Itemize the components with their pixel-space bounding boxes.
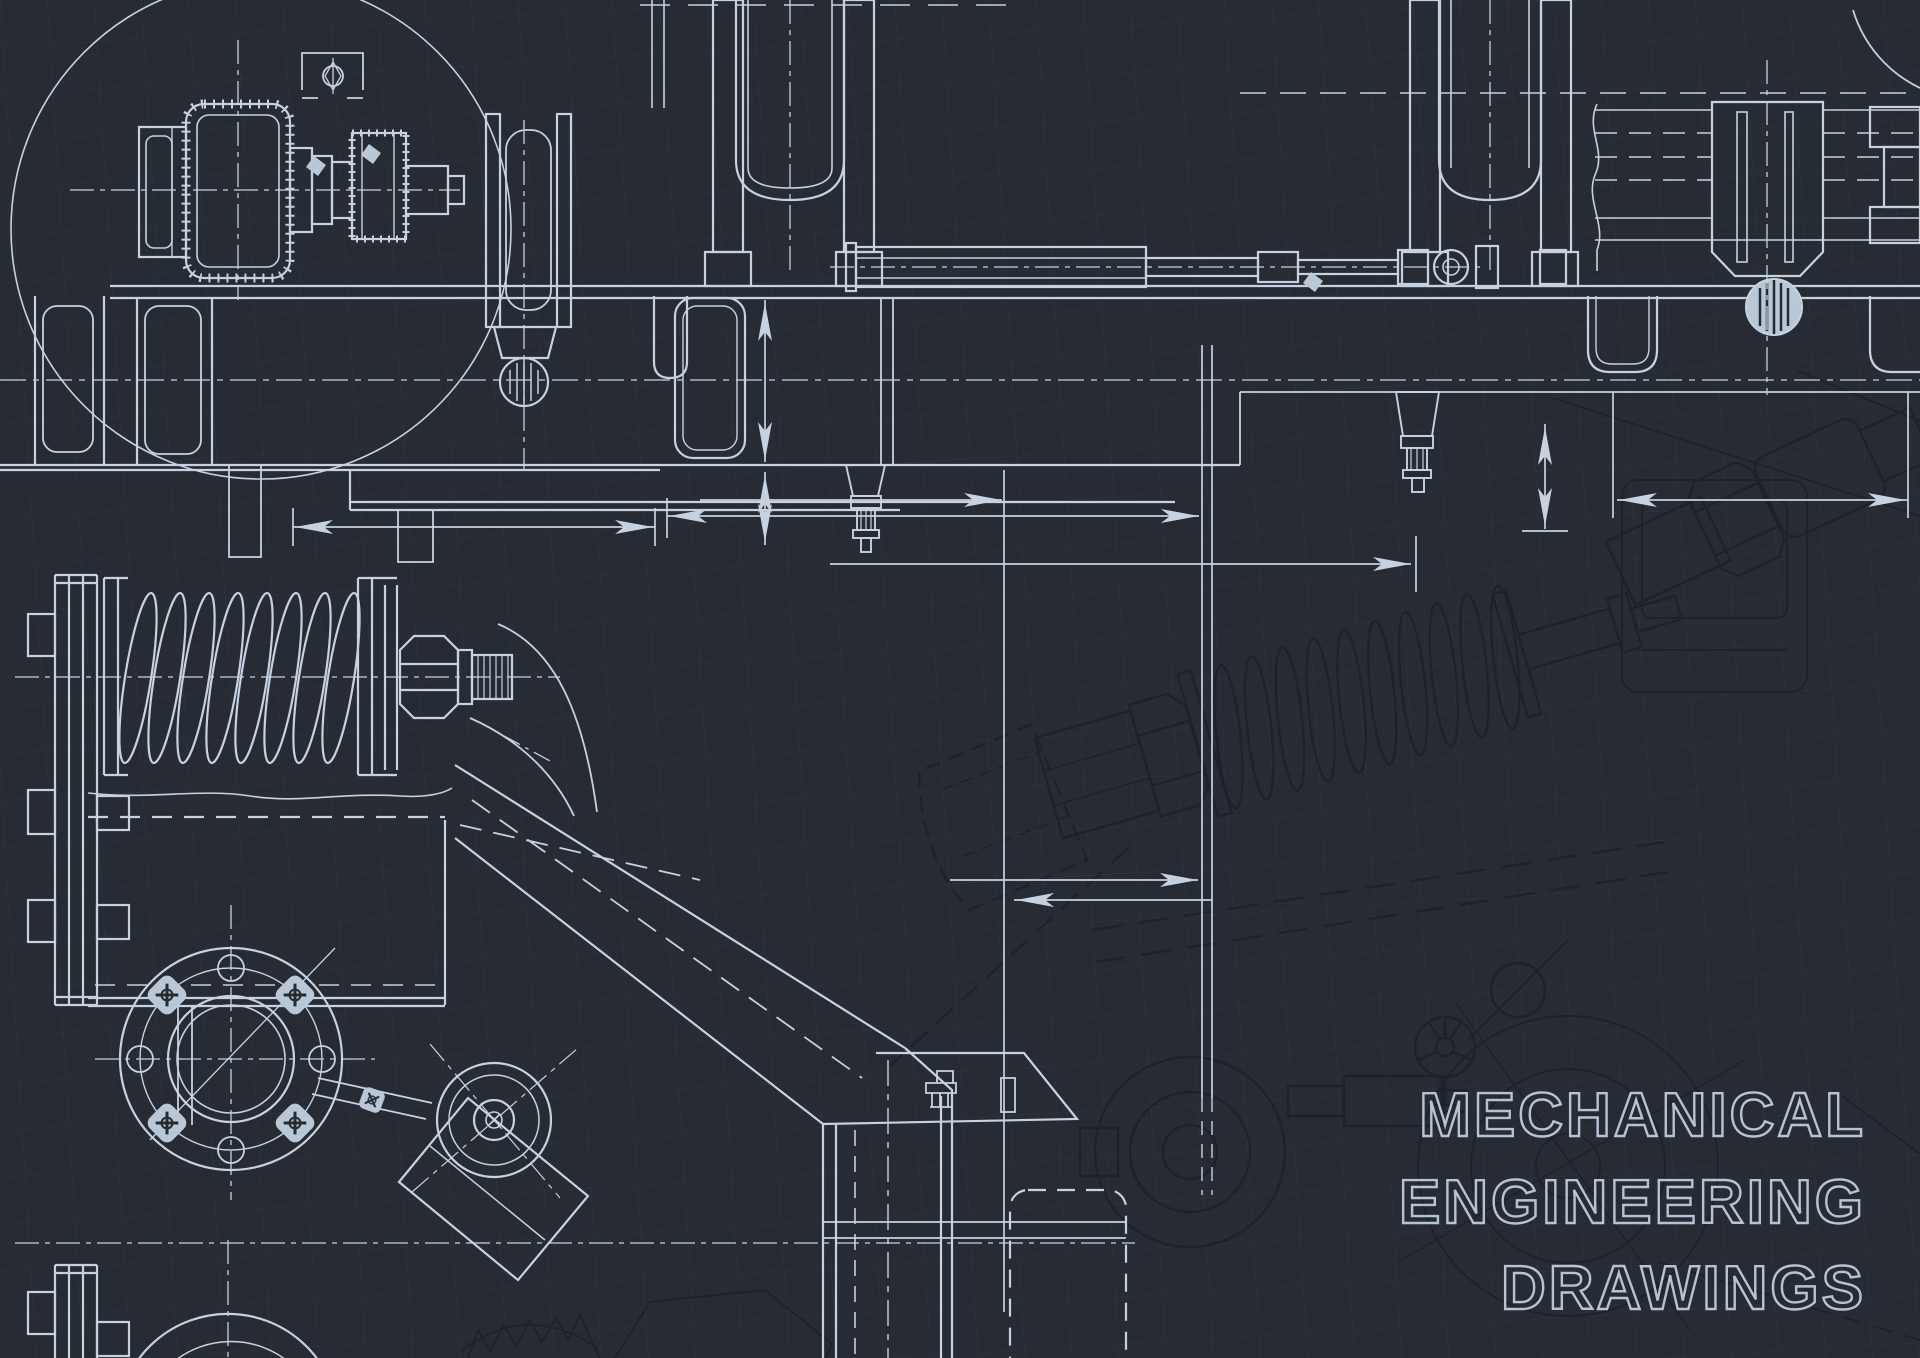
blueprint-poster: MECHANICAL ENGINEERING DRAWINGS (0, 0, 1920, 1358)
blueprint-canvas: MECHANICAL ENGINEERING DRAWINGS (0, 0, 1920, 1358)
title-line-3: DRAWINGS (1501, 1254, 1866, 1323)
title-line-1: MECHANICAL (1419, 1081, 1866, 1150)
title-line-2: ENGINEERING (1399, 1168, 1866, 1237)
